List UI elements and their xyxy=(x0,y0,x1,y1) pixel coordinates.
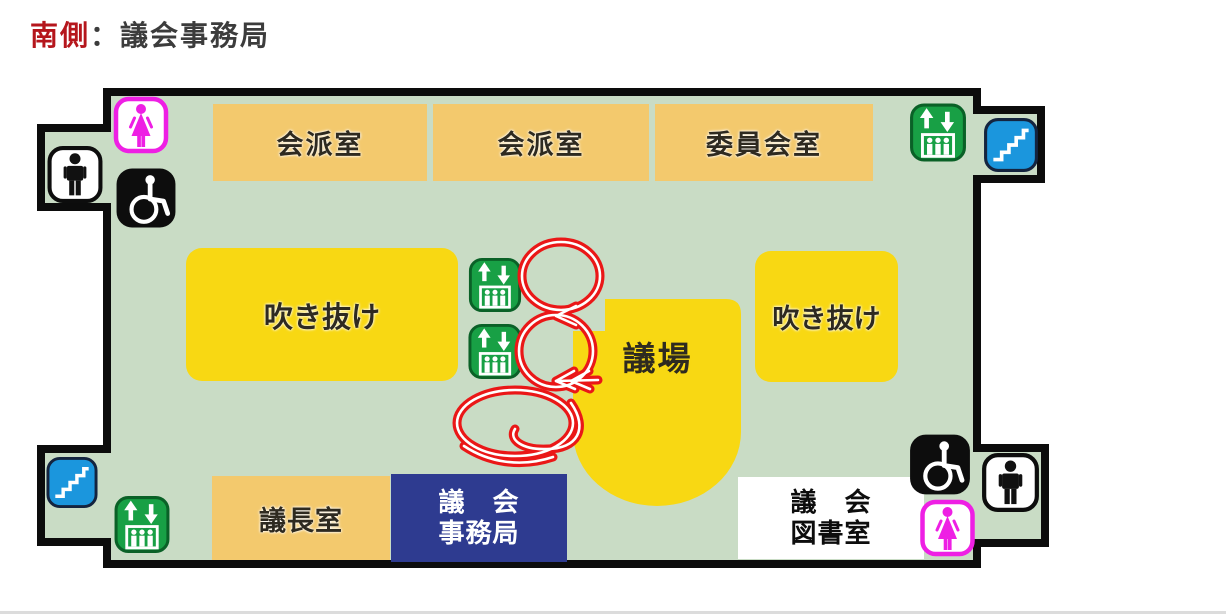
room-label-line1: 議 会 xyxy=(438,487,519,518)
room-chairman: 議長室 xyxy=(212,476,390,560)
room-library: 議 会 図書室 xyxy=(738,477,924,559)
room-label-line2: 図書室 xyxy=(790,518,871,549)
male-restroom-icon xyxy=(46,145,104,204)
title-direction: 南側 xyxy=(30,20,90,51)
room-label: 会派室 xyxy=(277,123,364,162)
page-title: 南側：議会事務局 xyxy=(30,14,270,54)
stairs-icon xyxy=(45,456,99,509)
room-label: 吹き抜け xyxy=(773,297,881,336)
room-atrium-left: 吹き抜け xyxy=(186,248,458,381)
room-faction-2: 会派室 xyxy=(433,104,649,181)
wheelchair-icon xyxy=(908,433,972,496)
stairs-icon xyxy=(983,116,1039,174)
elevator-icon xyxy=(466,323,524,380)
room-faction-1: 会派室 xyxy=(213,104,427,181)
room-label-line1: 議 会 xyxy=(790,487,871,518)
assembly-hall-label: 議場 xyxy=(585,332,730,380)
room-label: 議長室 xyxy=(259,499,343,538)
female-restroom-icon xyxy=(919,499,976,557)
room-atrium-right: 吹き抜け xyxy=(755,251,898,382)
room-label: 委員会室 xyxy=(706,123,822,162)
building-outline xyxy=(0,0,1226,616)
room-secretariat: 議 会 事務局 xyxy=(391,474,567,562)
elevator-icon xyxy=(112,495,172,554)
female-restroom-icon xyxy=(112,96,170,154)
room-label-line2: 事務局 xyxy=(438,518,519,549)
male-restroom-icon xyxy=(981,451,1040,514)
elevator-icon xyxy=(909,102,967,163)
elevator-icon xyxy=(466,257,524,313)
wheelchair-icon xyxy=(115,166,177,230)
title-separator: ： xyxy=(90,20,120,51)
room-label: 会派室 xyxy=(498,123,585,162)
floor-plan-page: 南側：議会事務局 会派室 会派室 委員会室 吹き抜け 吹き抜け 議場 議長室 議… xyxy=(0,0,1226,616)
title-text: 議会事務局 xyxy=(120,20,270,51)
room-committee: 委員会室 xyxy=(655,104,873,181)
room-label: 吹き抜け xyxy=(264,294,380,336)
